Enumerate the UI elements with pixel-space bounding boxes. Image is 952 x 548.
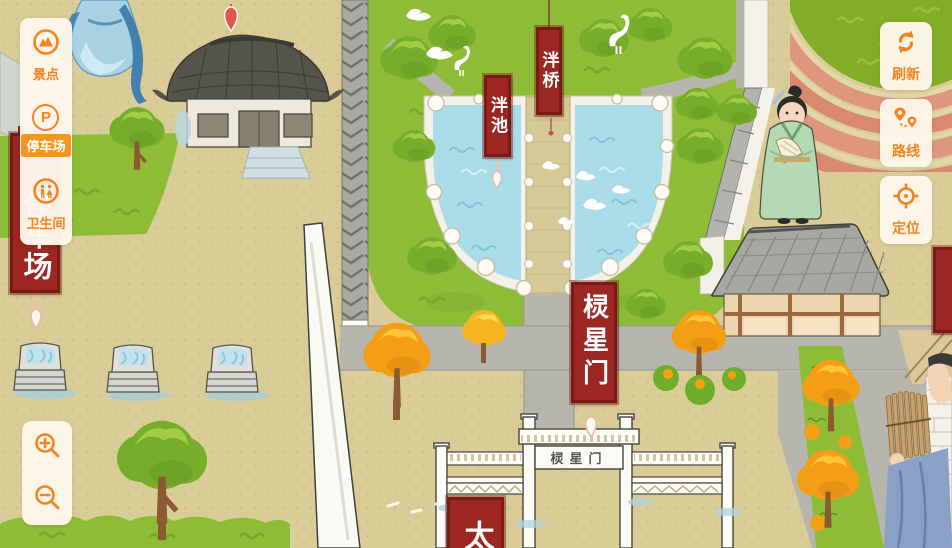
map-label-pan-bridge[interactable]: 泮桥 xyxy=(536,27,562,115)
locate-button[interactable]: 定位 xyxy=(880,176,932,244)
zoom-out-icon xyxy=(32,482,62,517)
map-label-pan-pond[interactable]: 泮池 xyxy=(484,75,511,157)
tiled-wall-top xyxy=(342,0,368,343)
menu-item-scenic-spots[interactable]: 景点 xyxy=(32,28,60,83)
gate-plaque-text: 棂星门 xyxy=(536,447,622,468)
map-button-label: 定位 xyxy=(892,218,920,238)
map-label-lingxing-gate[interactable]: 棂星门 xyxy=(571,282,617,403)
menu-item-parking[interactable]: P 停车场 xyxy=(29,104,62,157)
locate-icon xyxy=(892,182,920,215)
parking-icon: P xyxy=(32,104,59,131)
zoom-panel xyxy=(22,421,72,525)
temple-map-illustration[interactable] xyxy=(0,0,952,548)
map-label-right-edge[interactable] xyxy=(933,247,952,333)
zoom-out-button[interactable] xyxy=(32,482,62,517)
map-button-label: 刷新 xyxy=(892,64,920,84)
menu-item-label: 景点 xyxy=(33,64,59,83)
map-label-text: 太 xyxy=(454,520,498,548)
menu-item-restroom[interactable]: 卫生间 xyxy=(26,177,65,232)
map-label-bottom-partial[interactable]: 太 xyxy=(447,497,504,548)
map-label-text: 泮桥 xyxy=(537,51,562,91)
left-menu-panel: 景点 P 停车场 卫生间 xyxy=(20,18,72,245)
menu-item-label: 卫生间 xyxy=(26,213,65,232)
map-label-text: 棂星门 xyxy=(576,293,613,392)
map-stage: 停车场 泮桥 泮池 棂星门 太 棂星门 景点 P 停车场 卫生间 刷新 路线 定… xyxy=(0,0,952,548)
restroom-icon xyxy=(32,177,60,210)
zoom-in-icon xyxy=(32,430,62,465)
zoom-in-button[interactable] xyxy=(32,430,62,465)
scenic-spots-icon xyxy=(32,28,60,61)
map-label-text: 泮池 xyxy=(485,96,510,136)
route-button[interactable]: 路线 xyxy=(880,99,932,167)
route-icon xyxy=(892,105,920,138)
stone-monuments xyxy=(14,343,268,401)
menu-item-label-selected: 停车场 xyxy=(21,134,70,157)
map-button-label: 路线 xyxy=(892,141,920,161)
refresh-icon xyxy=(892,28,920,61)
refresh-button[interactable]: 刷新 xyxy=(880,22,932,90)
